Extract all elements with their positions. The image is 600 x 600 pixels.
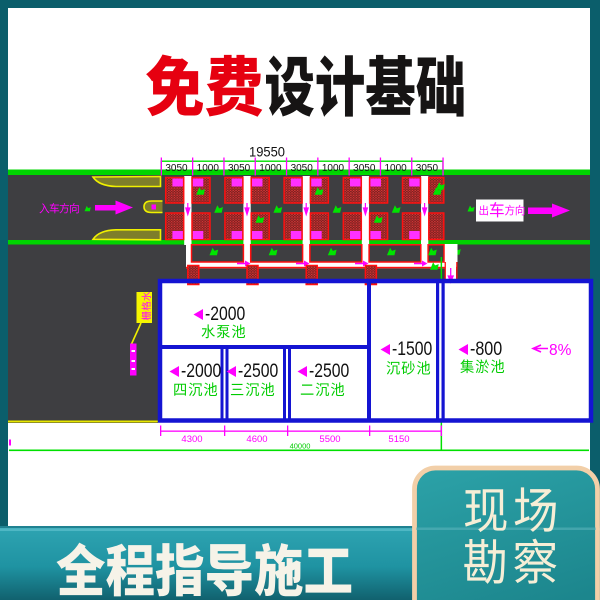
svg-text:-2000: -2000 [205,304,245,325]
svg-text:3050: 3050 [165,163,188,174]
svg-text:5500: 5500 [319,434,340,445]
svg-text:1000: 1000 [322,163,345,174]
svg-text:-1500: -1500 [392,339,432,360]
svg-text:-2500: -2500 [309,361,349,382]
svg-text:4300: 4300 [181,434,202,445]
svg-text:1000: 1000 [197,163,220,174]
svg-text:40000: 40000 [290,442,311,451]
svg-text:3050: 3050 [228,163,251,174]
svg-text:-2000: -2000 [181,361,221,382]
svg-text:3050: 3050 [291,163,314,174]
svg-text:3050: 3050 [416,163,439,174]
svg-text:4600: 4600 [246,434,267,445]
svg-text:19550: 19550 [249,144,285,160]
svg-text:5150: 5150 [388,434,409,445]
svg-text:-800: -800 [470,339,502,360]
svg-text:1000: 1000 [384,163,407,174]
svg-text:1000: 1000 [259,163,282,174]
svg-text:8%: 8% [549,342,572,359]
svg-text:-2500: -2500 [238,361,278,382]
svg-text:3050: 3050 [353,163,376,174]
